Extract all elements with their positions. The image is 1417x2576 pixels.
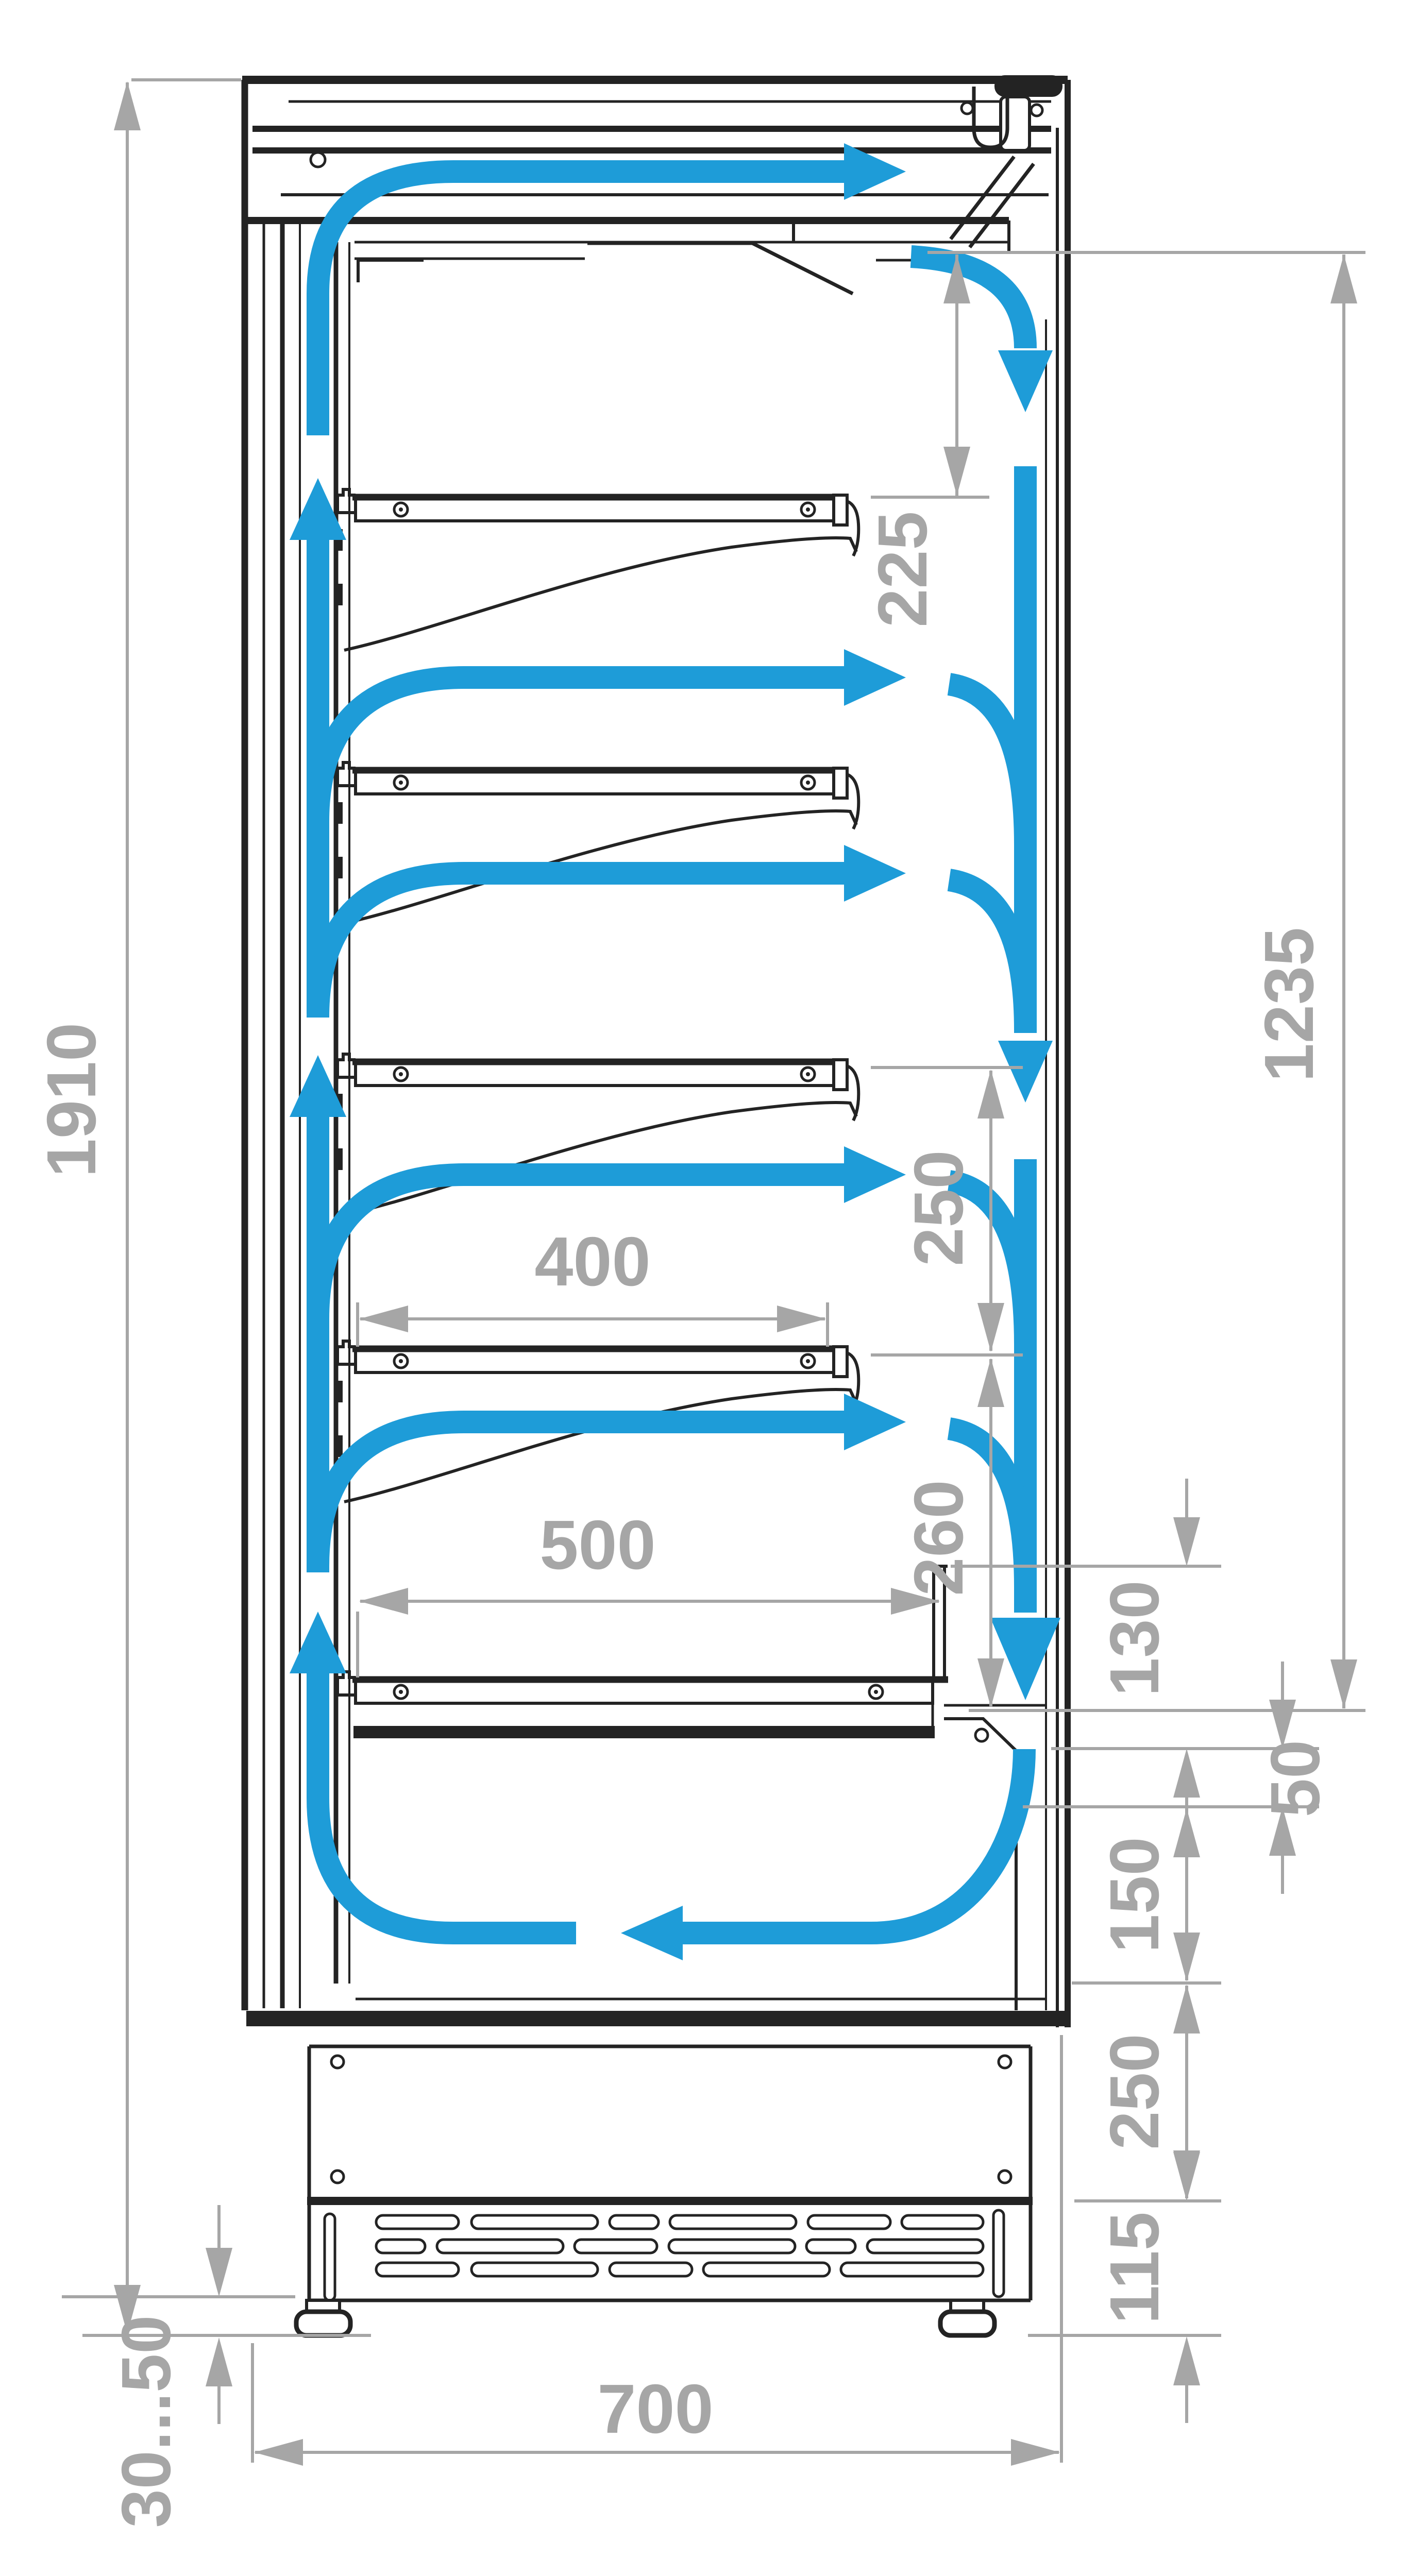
cabinet-floor [246,1999,1065,2019]
shelves [338,489,858,1502]
shelf-2 [338,762,858,923]
dim-bottom-tray-depth: 500 [539,1506,655,1584]
dim-machine-compartment-height: 250 [1095,2033,1173,2149]
dim-intake-height: 130 [1095,1580,1173,1696]
bottom-tray [338,1566,948,1732]
air-deflector [587,243,853,294]
airflow-left-arrowhead [621,1906,683,1960]
foot-pad [296,2312,350,2335]
airflow-bottom-to-rear [318,1669,576,1933]
airflow-shelf-branch [318,873,845,1018]
airflow-shelf-branch [318,677,845,822]
screw-icon [331,2056,344,2068]
screw-icon [975,1729,988,1741]
dim-shelf-depth: 400 [534,1223,650,1300]
airflow-right-arrowhead [844,1394,906,1450]
airflow-right-arrowhead [844,1146,906,1203]
grille-handle-slot [993,2210,1004,2297]
dim-lower-rail-height: 150 [1095,1837,1173,1953]
foot-pad [940,2312,994,2335]
dim-display-opening-height: 1235 [1250,927,1328,1082]
dim-gap-height: 50 [1256,1740,1334,1817]
shelf-1 [338,489,858,650]
airflow-down-arrowhead [998,350,1053,412]
dim-shelf-spacing: 250 [900,1150,977,1266]
screw-icon [999,2171,1011,2183]
machine-base [296,2046,1033,2335]
airflow-right-arrowhead [844,845,906,902]
dim-top-clearance: 225 [864,511,941,627]
dim-overall-depth: 700 [597,2370,713,2448]
screw-icon [999,2056,1011,2068]
front-frame [1046,80,1068,2027]
airflow-merge-curve [949,880,1025,1030]
vent-grille [325,2210,1004,2300]
dim-bottom-shelf-spacing: 260 [900,1480,977,1596]
dim-foot-height-range: 30...50 [107,2315,185,2528]
grille-handle-slot [325,2214,335,2300]
airflow-right-arrowhead [844,649,906,706]
refrigerated-cabinet-cross-section: 1910 225 1235 250 260 400 500 130 50 150… [0,0,1417,2576]
screw-icon [311,152,325,167]
dim-overall-height: 1910 [32,1023,110,1177]
hinge-cap [994,75,1062,97]
dim-vent-grille-height: 115 [1095,2212,1173,2324]
screw-icon [331,2171,344,2183]
left-wall [245,80,349,2010]
airflow-down-arrowhead [998,1041,1053,1103]
airflow-merge-curve [949,684,1025,845]
airflow-top-discharge [318,172,845,435]
adjustable-feet [296,2300,994,2335]
shelf-wire-curve [344,538,856,650]
airflow-return [683,1749,1024,1933]
